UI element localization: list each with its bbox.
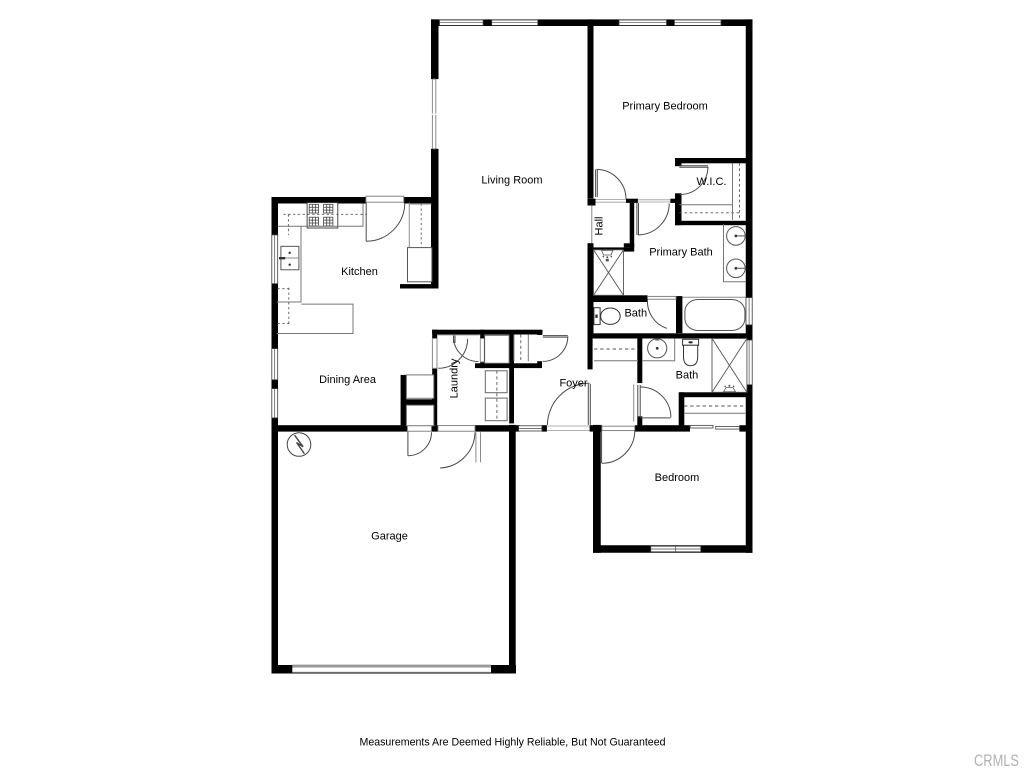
svg-text:Laundry: Laundry — [449, 358, 461, 398]
svg-text:Primary Bath: Primary Bath — [649, 247, 713, 259]
svg-text:Foyer: Foyer — [559, 378, 587, 390]
svg-text:Garage: Garage — [371, 531, 408, 543]
svg-text:Living Room: Living Room — [481, 175, 542, 187]
svg-text:Bath: Bath — [624, 308, 647, 320]
svg-text:Bedroom: Bedroom — [655, 472, 700, 484]
svg-text:W.I.C.: W.I.C. — [697, 176, 727, 188]
svg-text:Primary Bedroom: Primary Bedroom — [622, 101, 708, 113]
svg-text:Dining Area: Dining Area — [319, 374, 377, 386]
svg-text:Hall: Hall — [594, 217, 606, 236]
svg-text:Measurements Are Deemed Highly: Measurements Are Deemed Highly Reliable,… — [360, 737, 666, 749]
svg-text:CRMLS: CRMLS — [974, 752, 1019, 768]
svg-text:Bath: Bath — [676, 370, 699, 382]
svg-text:Kitchen: Kitchen — [341, 266, 378, 278]
